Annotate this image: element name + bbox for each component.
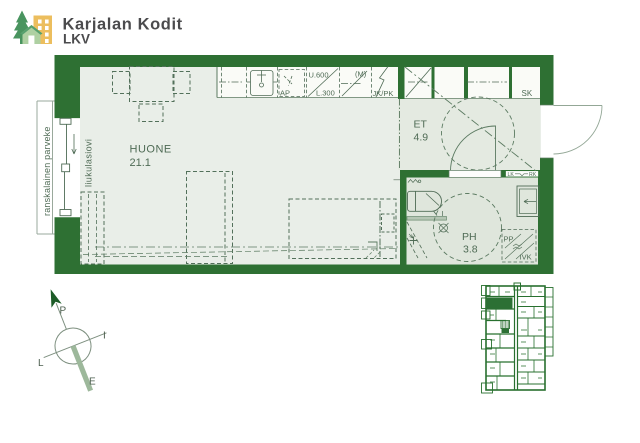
svg-text:LK: LK xyxy=(508,172,515,178)
svg-text:IVK: IVK xyxy=(520,253,532,262)
svg-text:SK: SK xyxy=(522,89,533,98)
svg-text:JK/PK: JK/PK xyxy=(373,89,394,98)
svg-text:ranskalainen parveke: ranskalainen parveke xyxy=(42,126,52,216)
svg-text:3.8: 3.8 xyxy=(463,244,478,256)
svg-text:U.600: U.600 xyxy=(309,71,329,80)
svg-text:ET: ET xyxy=(414,119,428,131)
svg-text:RK: RK xyxy=(529,172,537,178)
svg-text:AP: AP xyxy=(280,89,290,98)
svg-text:LKV: LKV xyxy=(63,32,90,47)
svg-text:L: L xyxy=(38,358,44,369)
svg-text:PH: PH xyxy=(462,231,477,243)
svg-text:4.9: 4.9 xyxy=(414,132,429,144)
svg-text:PP: PP xyxy=(504,235,514,244)
svg-text:E: E xyxy=(89,377,96,388)
svg-text:(M): (M) xyxy=(355,70,367,79)
svg-text:I: I xyxy=(103,331,106,342)
svg-text:HUONE: HUONE xyxy=(130,144,172,156)
svg-text:P: P xyxy=(60,306,67,317)
svg-text:liukulasiovi: liukulasiovi xyxy=(84,139,94,187)
svg-text:L.300: L.300 xyxy=(316,89,335,98)
svg-text:21.1: 21.1 xyxy=(130,157,151,169)
